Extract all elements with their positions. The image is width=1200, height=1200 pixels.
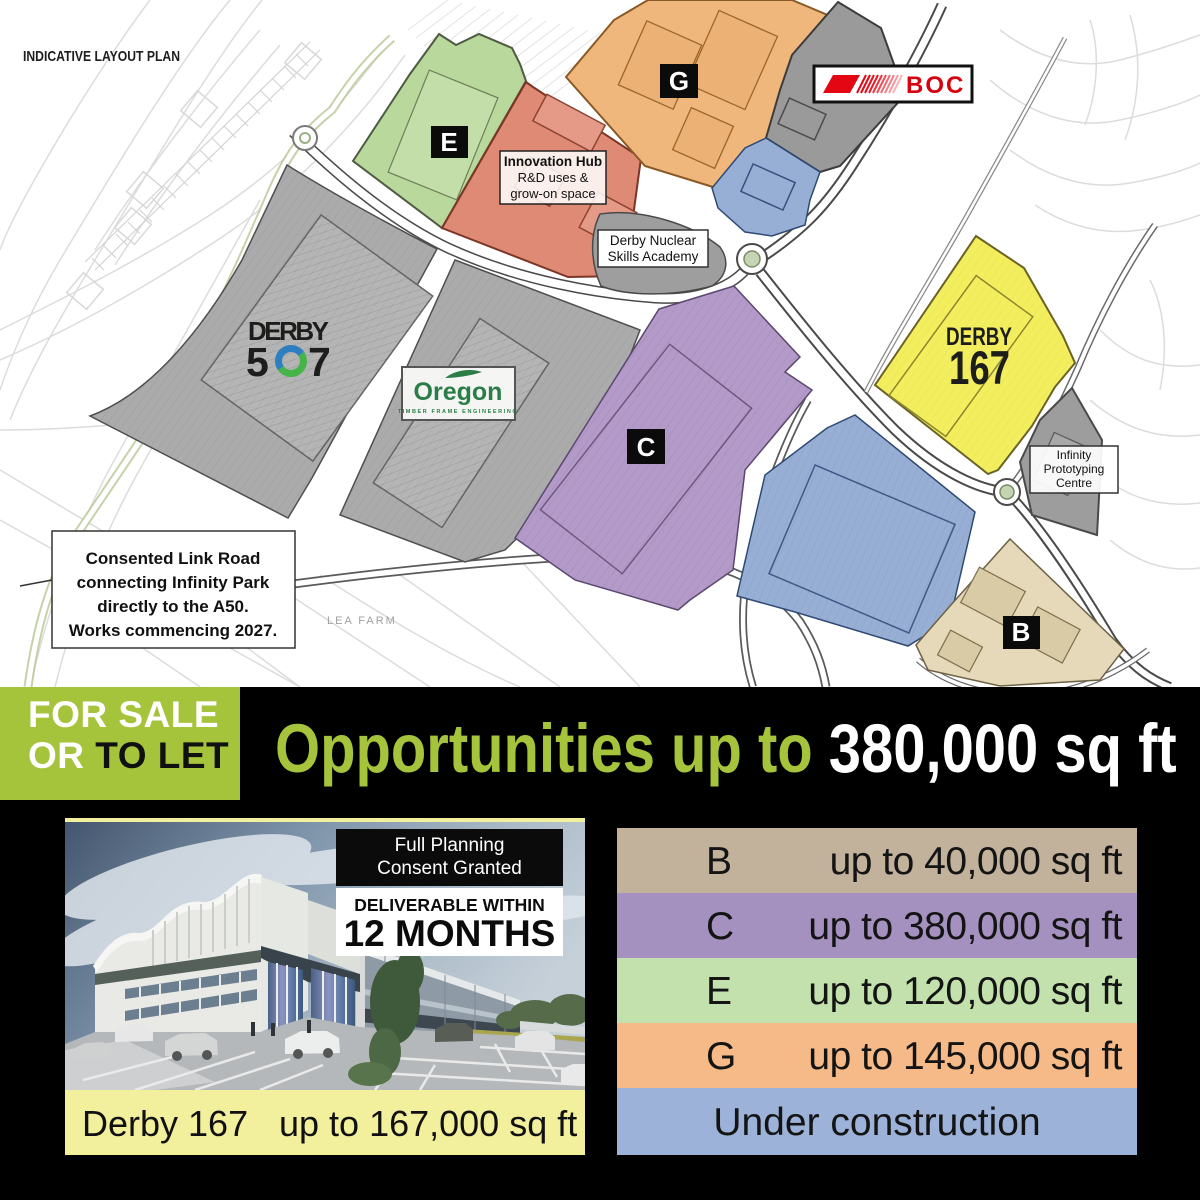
- svg-text:TIMBER FRAME ENGINEERING: TIMBER FRAME ENGINEERING: [398, 409, 519, 415]
- svg-text:E: E: [440, 127, 457, 157]
- svg-text:Oregon: Oregon: [414, 378, 503, 406]
- svg-text:Innovation Hub: Innovation Hub: [504, 154, 602, 169]
- svg-text:Prototyping: Prototyping: [1044, 462, 1105, 476]
- svg-text:R&D uses &: R&D uses &: [518, 170, 589, 185]
- svg-text:167: 167: [949, 341, 1010, 394]
- svg-text:Centre: Centre: [1056, 476, 1092, 490]
- svg-text:Skills Academy: Skills Academy: [608, 249, 699, 264]
- svg-text:grow-on space: grow-on space: [510, 186, 595, 201]
- svg-text:connecting Infinity Park: connecting Infinity Park: [77, 573, 270, 592]
- svg-text:LEA FARM: LEA FARM: [327, 615, 397, 627]
- svg-text:7: 7: [308, 339, 331, 385]
- svg-text:C: C: [637, 432, 656, 462]
- svg-text:5: 5: [246, 339, 269, 385]
- svg-text:Infinity: Infinity: [1057, 448, 1092, 462]
- svg-text:Consented Link Road: Consented Link Road: [86, 549, 261, 568]
- svg-text:Works commencing 2027.: Works commencing 2027.: [69, 621, 278, 640]
- svg-text:INDICATIVE LAYOUT PLAN: INDICATIVE LAYOUT PLAN: [23, 48, 180, 65]
- svg-text:BOC: BOC: [906, 72, 965, 99]
- svg-text:Derby Nuclear: Derby Nuclear: [610, 233, 697, 248]
- svg-text:B: B: [1012, 617, 1031, 647]
- svg-text:directly to the A50.: directly to the A50.: [97, 597, 248, 616]
- svg-text:G: G: [669, 66, 689, 96]
